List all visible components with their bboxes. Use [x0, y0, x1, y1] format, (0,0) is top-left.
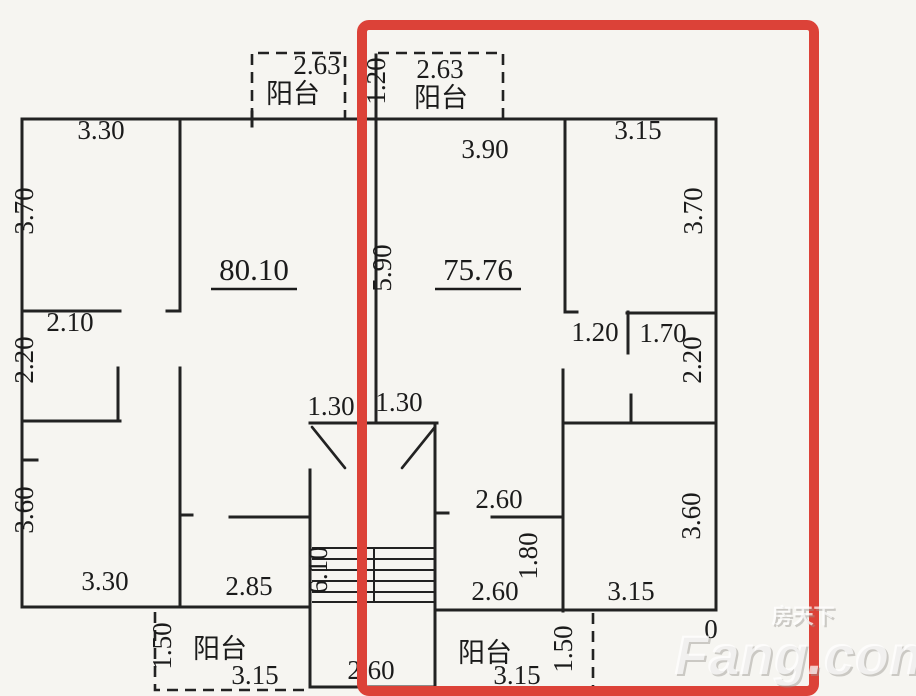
dimension-label: 3.70 [678, 187, 708, 234]
dimension-label: 3.70 [9, 187, 39, 234]
dimension-label: 2.20 [677, 336, 707, 383]
floorplan-image: 2.63阳台1.202.63阳台3.303.903.153.703.7080.1… [0, 0, 916, 696]
dimension-label: 1.30 [375, 387, 422, 417]
dimension-label: 6.10 [303, 546, 333, 593]
dimension-label: 1.30 [307, 391, 354, 421]
dimension-label: 1.80 [513, 532, 543, 579]
dimension-label: 3.30 [81, 566, 128, 596]
dimension-label: 2.60 [475, 484, 522, 514]
dimension-label: 3.15 [607, 576, 654, 606]
dimension-label: 3.60 [9, 486, 39, 533]
dimension-label: 3.15 [614, 115, 661, 145]
dimension-label: 2.20 [9, 336, 39, 383]
dimension-label: 5.90 [367, 244, 397, 291]
dimension-label: 2.60 [347, 655, 394, 685]
dimension-label: 1.50 [548, 625, 578, 672]
dimension-label: 2.63 [416, 54, 463, 84]
dimension-label: 3.90 [461, 134, 508, 164]
area-label: 75.76 [443, 252, 513, 287]
dimension-label: 1.50 [147, 622, 177, 669]
dimension-label: 2.63 [293, 50, 340, 80]
dimension-label: 1.20 [571, 317, 618, 347]
dimension-label: 3.15 [231, 660, 278, 690]
dimension-label: 2.85 [225, 571, 272, 601]
dimension-label: 3.60 [676, 492, 706, 539]
dimension-label: 2.60 [471, 576, 518, 606]
floorplan-svg: 2.63阳台1.202.63阳台3.303.903.153.703.7080.1… [0, 0, 916, 696]
dimension-label: 2.10 [46, 307, 93, 337]
balcony-label: 阳台 [266, 79, 320, 109]
dimension-label: 3.30 [77, 115, 124, 145]
dimension-label: 3.15 [493, 660, 540, 690]
area-label: 80.10 [219, 252, 289, 287]
balcony-label: 阳台 [414, 83, 468, 113]
watermark-latin: Fang.com [674, 623, 916, 686]
